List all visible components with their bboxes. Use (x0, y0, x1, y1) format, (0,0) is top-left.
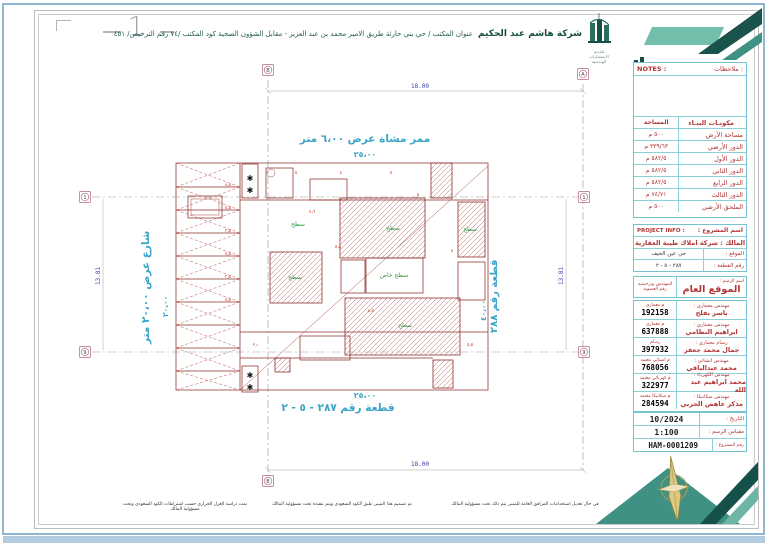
engineers-box: م معماري192158 مهندس معماري :ياسر بفلح م… (633, 300, 747, 412)
engineer-name: مذكر عاهض الحربي (680, 400, 743, 408)
area-value: ٥٨٢/٥ م (634, 153, 679, 164)
engineer-row: م معماري637888 مهندس معماري :ابراهيم الن… (634, 319, 746, 337)
plan-dim: ٣٫٥ (225, 228, 232, 234)
engineer-name: جمال محمد جعفر (684, 346, 740, 354)
tree-icon: ✱ (247, 371, 254, 380)
grid-marker-col-b-bottom: B (263, 476, 274, 487)
component-row: ٥٠٠ م مساحة الأرض (634, 128, 746, 140)
component-name: الملحق الأرضي (679, 201, 746, 212)
col-header-area: المساحة (634, 117, 679, 128)
scale-value: 1:100 (634, 426, 699, 438)
tree-icon: ✱ (247, 186, 254, 195)
plot-number-value: ٢٨٧ - ٥ - ٢ (634, 260, 703, 271)
grid-letter: B (266, 479, 270, 485)
plan-dim: ٥٫٥ (467, 343, 474, 348)
grid-marker-row-9-right: 9 (579, 347, 590, 358)
area-value: ٣٣٩/٦٣ م (634, 141, 679, 152)
fold-mark (56, 20, 71, 31)
project-number-value: HAM-0001209 (634, 439, 712, 452)
grid-marker-col-b-top: B (263, 65, 274, 76)
footer-note: تمت دراسة العزل الحراري حسب اشتراطات الك… (120, 502, 250, 512)
drawing-sheet: B A B 1 9 1 9 18.00 18.00 13.81 13. (0, 0, 768, 543)
plan-dim: ٥ (451, 249, 454, 254)
plan-dim: ٥٫٥ (225, 298, 232, 303)
component-name: الدور الثالث (679, 189, 746, 200)
col-header-component: مكونـات البنـاء (679, 117, 746, 128)
license-number: 284594 (642, 399, 669, 408)
engineer-row: م معماري192158 مهندس معماري :ياسر بفلح (634, 301, 746, 319)
license-number: 768056 (642, 363, 669, 372)
street-dim: ٢٠،٠٠ (161, 296, 170, 317)
company-logo: لتقديم الاستشارات الهندسية (584, 13, 614, 64)
project-number-label: رقم المشروع : (712, 439, 746, 452)
plan-dim: ٨٫٨ (225, 183, 232, 188)
walkway-label: ممر مشاة عرض ٦،٠٠ متر (285, 133, 445, 145)
grid-marker-row-1-left: 1 (80, 192, 91, 203)
company-name: شركة هاشم عبد الحكيم (478, 29, 582, 39)
project-info-box: PROJECT INFO : اسم المشروع : المالك : شر… (633, 224, 747, 272)
owner: المالك : شركة املاك طيبة العقارية (635, 239, 745, 247)
roof-label: سطح خاص (380, 272, 409, 279)
plan-dim: ٥٫٥ (225, 252, 232, 257)
plot-288-label: قطعة رقم ٢٨٨ (489, 260, 500, 333)
engineer-row: م كهربائي معتمد322977 مهندس الكهرباء :مح… (634, 373, 746, 391)
grid-marker-row-1-right: 1 (579, 192, 590, 203)
grid-letter: 1 (83, 195, 86, 201)
plot-288-dim: ٤٠،٠٠ (479, 300, 488, 321)
plan-dim: ٥ (390, 171, 393, 176)
engineer-row: م انشائي معتمد768056 مهندس انشائي :محمد … (634, 355, 746, 373)
plan-dim: ٥٫٨ (335, 245, 342, 250)
logo-caption: لتقديم الاستشارات الهندسية (584, 49, 614, 64)
grid-marker-col-a-top: A (578, 69, 589, 80)
plot-number-label: رقم القطعة : (703, 260, 746, 271)
dim-height-right: 13.81 (558, 267, 565, 285)
company-address: عنوان المكتب / حي بني حارثة طريق الامير … (114, 30, 473, 38)
roof-label: سطح (291, 221, 305, 228)
component-name: مساحة الأرض (679, 129, 746, 140)
sheet-name-value: الموقع العام (683, 284, 741, 295)
tree-icon: ✱ (247, 174, 254, 183)
walkway-dim: ٢٥،٠٠ (330, 150, 400, 159)
footer-note: تم تصميم هذا المبنى طبق الكود السعودي وي… (272, 502, 412, 507)
engineer-name: محمد عبدالباقي (686, 364, 737, 372)
grid-marker-row-9-left: 9 (80, 347, 91, 358)
sheet-name-box: المهندس وترخيصه رقم العضوية اسم الرسم : … (633, 276, 747, 298)
roof-label: سطح (386, 225, 400, 232)
license-number: 397932 (642, 345, 669, 354)
area-value: ٥٨٢/٥ م (634, 165, 679, 176)
component-name: الدور الأرضي (679, 141, 746, 152)
title-block: NOTES : ملاحظات : المساحة مكونـات البنـا… (630, 54, 754, 524)
components-header-row: المساحة مكونـات البنـاء (634, 116, 746, 128)
date-label: التاريخ : (699, 413, 746, 425)
scale-label: مقياس الرسم : (699, 426, 746, 438)
notes-label-ar: ملاحظات : (714, 65, 743, 73)
plan-dim: ٢٫٠ (253, 343, 259, 348)
project-info-en: PROJECT INFO : (637, 228, 685, 234)
grid-letter: 9 (582, 350, 585, 356)
license-number: 322977 (642, 381, 669, 390)
building-logo-icon (584, 13, 614, 45)
grid-letter: B (266, 68, 270, 74)
component-row: ٥٨٢/٥ م الدور الثاني (634, 164, 746, 176)
area-value: ٧٤/٧١ م (634, 189, 679, 200)
plan-dim: ٧٫٦ (309, 210, 316, 215)
dim-height-left: 13.81 (95, 267, 102, 285)
component-name: الدور الرابع (679, 177, 746, 188)
area-value: ٥٠٠ م (634, 201, 679, 212)
location-label: الموقع : (703, 249, 746, 259)
plan-dim: ٤٫٥ (368, 309, 375, 314)
footer-note: في حال تعديل استخدامات المرافق العامة لل… (450, 502, 600, 507)
plot-287-dim: ٢٥،٠٠ (330, 391, 400, 400)
plan-dim: ٥ (295, 171, 298, 176)
grid-letter: 9 (83, 350, 86, 356)
grid-letter: 1 (582, 195, 585, 201)
plan-dim: ٤ (340, 171, 343, 176)
tree-icon: ✱ (247, 383, 254, 392)
north-compass-icon (648, 452, 700, 524)
component-row: ٧٤/٧١ م الدور الثالث (634, 188, 746, 200)
area-value: ٥٨٢/٥ م (634, 177, 679, 188)
engineer-row: رسام397932 رسام معماري :جمال محمد جعفر (634, 337, 746, 355)
component-row: ٥٨٢/٥ م الدور الأول (634, 152, 746, 164)
dim-width-bottom: 18.00 (411, 461, 429, 468)
component-row: ٣٣٩/٦٣ م الدور الأرضي (634, 140, 746, 152)
engineer-name: ابراهيم النظامي (686, 328, 738, 336)
notes-and-components-box: NOTES : ملاحظات : المساحة مكونـات البنـا… (633, 62, 747, 218)
license-number: 637888 (642, 327, 669, 336)
license-number: 192158 (642, 308, 669, 317)
roof-label: سطح (288, 274, 302, 281)
engineer-row: م ميكانيكا معتمد284594 مهندس ميكانيكا :م… (634, 391, 746, 409)
engineer-col-header-2: رقم العضوية (643, 287, 666, 292)
component-name: الدور الأول (679, 153, 746, 164)
location-value: حي عين الخيف (634, 249, 703, 259)
engineer-name: ياسر بفلح (696, 309, 728, 317)
grid-letter: A (581, 72, 585, 78)
plan-dim: ٣٫٥ (225, 274, 232, 280)
date-value: 10/2024 (634, 413, 699, 425)
notes-label-en: NOTES : (637, 65, 666, 73)
street-label: شارع عرض ٢٠،٠٠ متر (140, 231, 152, 344)
component-row: ٥٨٢/٥ م الدور الرابع (634, 176, 746, 188)
component-row: ٥٠٠ م الملحق الأرضي (634, 200, 746, 212)
plan-dim: ٥٫٥ (225, 206, 232, 211)
roof-label: سطح (398, 322, 412, 329)
plot-287-label: قطعة رقم ٢٨٧ - ٥ - ٢ (268, 402, 408, 414)
area-value: ٥٠٠ م (634, 129, 679, 140)
dim-width-top: 18.00 (411, 83, 429, 90)
project-info-ar: اسم المشروع : (698, 227, 743, 234)
component-name: الدور الثاني (679, 165, 746, 176)
company-header: شركة هاشم عبد الحكيم عنوان المكتب / حي ب… (190, 21, 582, 40)
meta-box: 10/2024 التاريخ : 1:100 مقياس الرسم : HA… (633, 412, 747, 452)
roof-label: سطح (463, 226, 477, 233)
notes-empty-area (634, 76, 746, 116)
